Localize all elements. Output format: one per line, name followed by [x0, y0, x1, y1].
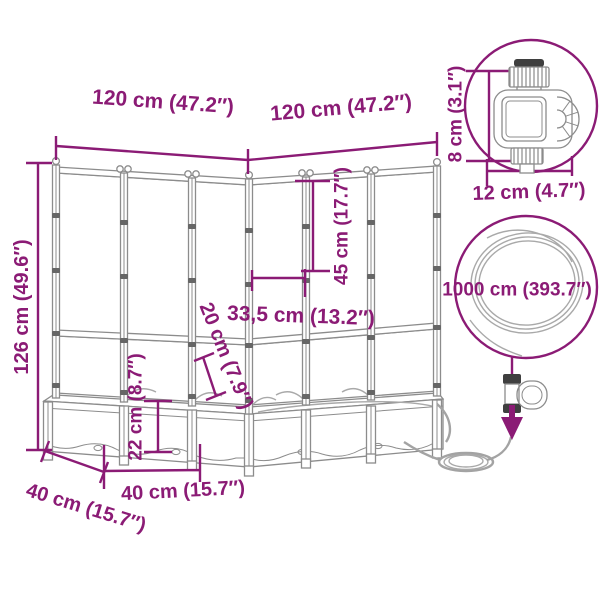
- dimension-diagram: 120 cm (47.2″) 120 cm (47.2″) 126 cm (49…: [0, 0, 600, 600]
- detail-circle-timer: [465, 40, 597, 173]
- dim-label-trellis-height: 45 cm (17.7″): [333, 167, 352, 285]
- dim-label-hose-length: 1000 cm (393.7″): [442, 281, 592, 300]
- trellis-posts: [52, 158, 441, 414]
- dim-label-timer-height: 8 cm (3.1″): [447, 66, 466, 163]
- dim-label-height-total: 126 cm (49.6″): [12, 239, 32, 374]
- dim-label-corner-inner-width: 33,5 cm (13.2″): [227, 303, 375, 329]
- water-timer-icon: [494, 59, 579, 173]
- dim-label-timer-width: 12 cm (4.7″): [472, 180, 586, 204]
- dim-label-box-height: 22 cm (8.7″): [127, 353, 146, 460]
- hose-coil-small: [439, 453, 493, 471]
